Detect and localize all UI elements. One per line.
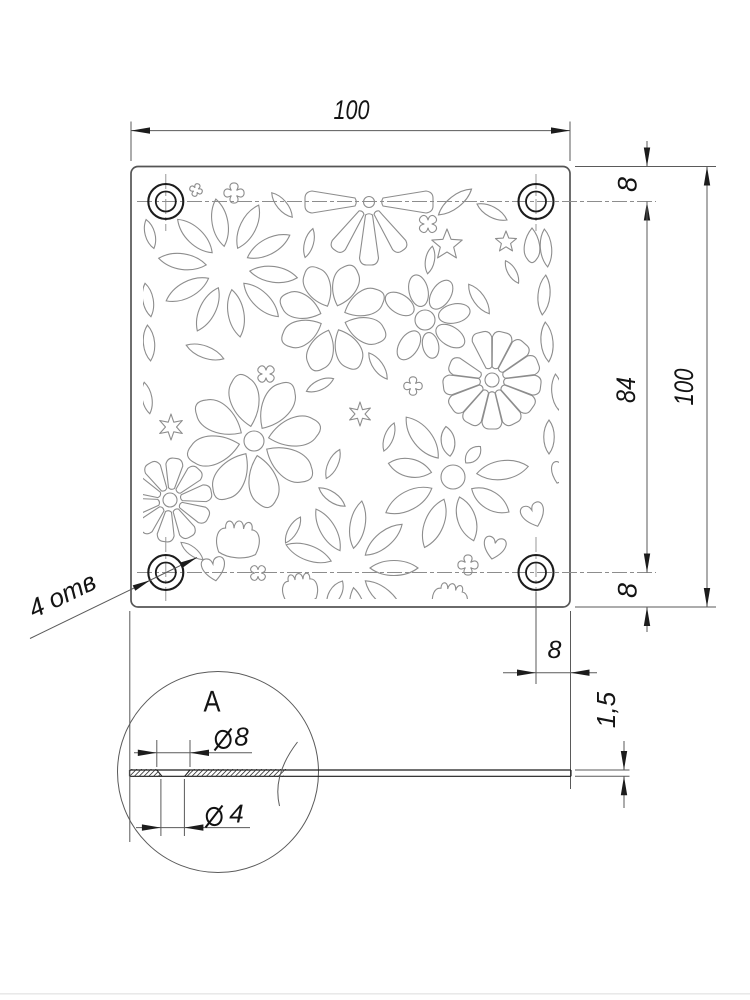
svg-text:8: 8 bbox=[613, 583, 643, 598]
svg-text:8: 8 bbox=[613, 177, 643, 192]
svg-text:100: 100 bbox=[333, 95, 369, 125]
svg-text:84: 84 bbox=[611, 377, 641, 403]
svg-text:8: 8 bbox=[548, 636, 562, 664]
svg-text:4: 4 bbox=[229, 798, 243, 828]
svg-text:100: 100 bbox=[669, 369, 699, 406]
svg-text:8: 8 bbox=[234, 721, 249, 751]
svg-text:A: A bbox=[203, 685, 220, 718]
svg-text:1,5: 1,5 bbox=[591, 691, 621, 728]
